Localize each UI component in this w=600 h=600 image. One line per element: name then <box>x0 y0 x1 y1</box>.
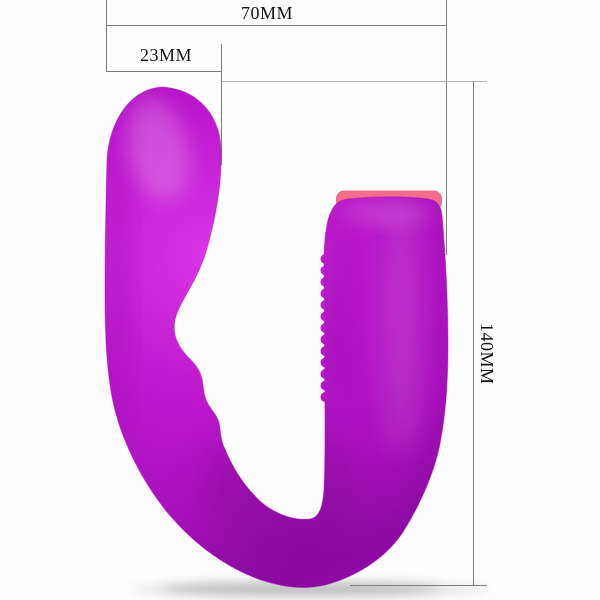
device-illustration <box>0 0 600 600</box>
dimension-label-total-height: 140MM <box>478 323 496 383</box>
product-dimension-diagram: 70MM 23MM 140MM <box>0 0 600 600</box>
dimension-label-head-width: 23MM <box>116 46 216 64</box>
dimension-label-total-width: 70MM <box>217 4 317 22</box>
